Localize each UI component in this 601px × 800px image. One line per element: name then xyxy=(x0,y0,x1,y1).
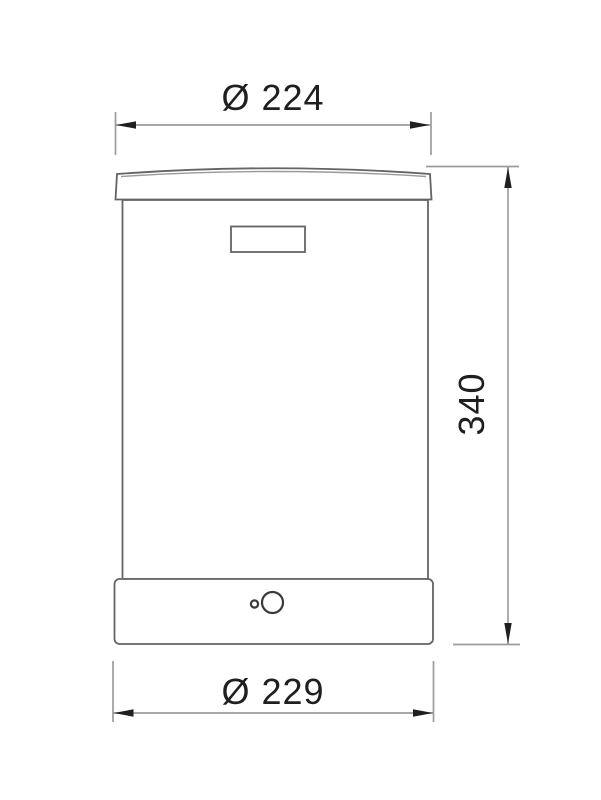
arrowhead-right-icon xyxy=(410,121,430,128)
bottom-diameter-label: Ø 229 xyxy=(221,671,324,712)
bin-base xyxy=(115,579,434,644)
height-dimension: 340 xyxy=(426,167,520,645)
top-diameter-dimension: Ø 224 xyxy=(116,77,432,155)
arrowhead-right-icon xyxy=(413,709,433,716)
arrowhead-left-icon xyxy=(116,121,136,128)
label-plate xyxy=(231,227,305,253)
bin-lid xyxy=(116,168,432,199)
drawing-canvas: Ø 224 340 xyxy=(0,0,601,800)
bottom-diameter-dimension: Ø 229 xyxy=(113,661,434,722)
technical-drawing: Ø 224 340 xyxy=(0,0,601,800)
bin-body xyxy=(123,200,429,579)
arrowhead-up-icon xyxy=(504,167,511,188)
arrowhead-down-icon xyxy=(504,623,511,644)
arrowhead-left-icon xyxy=(114,709,134,716)
height-label: 340 xyxy=(451,372,492,435)
bin-outline xyxy=(115,168,434,644)
top-diameter-label: Ø 224 xyxy=(221,77,324,118)
